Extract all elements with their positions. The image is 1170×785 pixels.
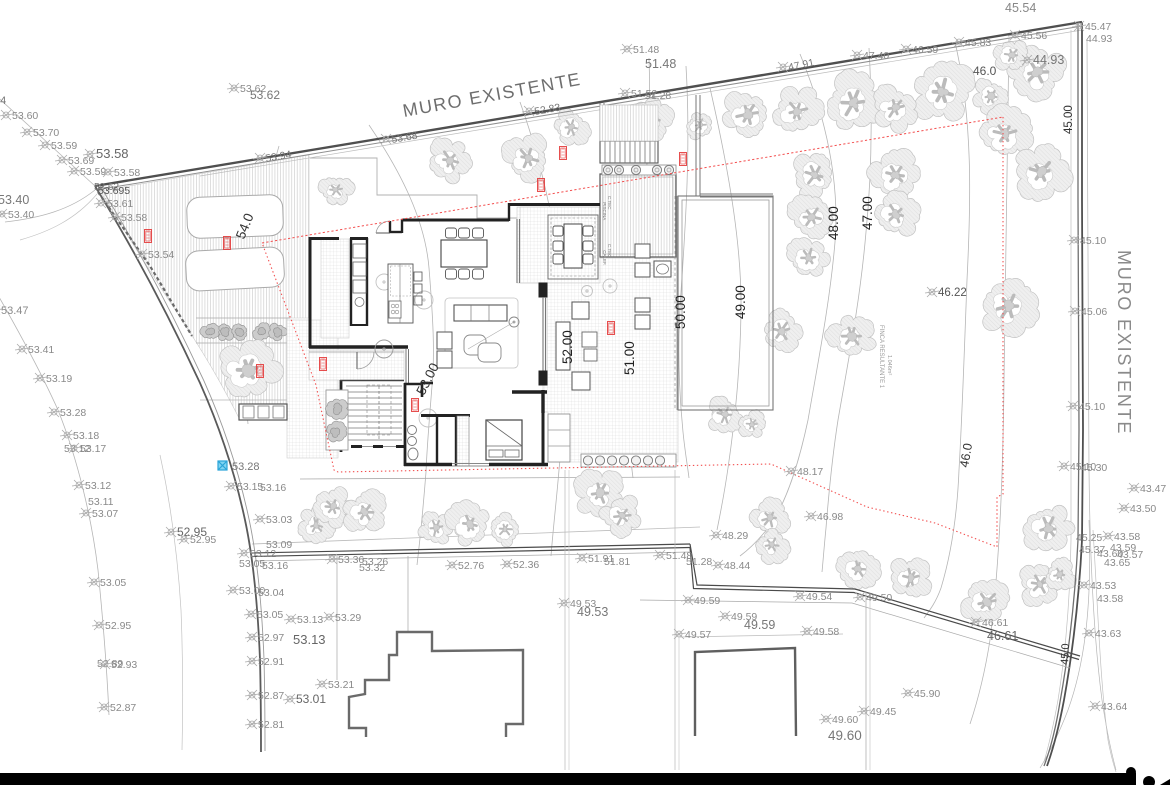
svg-text:53.54: 53.54 (148, 249, 174, 261)
svg-text:45.90: 45.90 (914, 688, 940, 700)
svg-text:45.47: 45.47 (1085, 21, 1111, 33)
svg-text:53.58: 53.58 (96, 146, 129, 161)
svg-text:52.81: 52.81 (258, 719, 284, 731)
svg-text:45.54: 45.54 (1005, 1, 1036, 15)
svg-text:43.47: 43.47 (1140, 483, 1166, 495)
svg-text:46.22: 46.22 (938, 287, 967, 299)
svg-text:53.05: 53.05 (100, 577, 126, 589)
svg-text:52.95: 52.95 (105, 620, 131, 632)
svg-text:49.57: 49.57 (685, 629, 711, 641)
svg-text:51.48: 51.48 (645, 57, 676, 71)
svg-text:52.00: 52.00 (560, 330, 575, 364)
svg-text:44.93: 44.93 (1033, 53, 1064, 67)
svg-text:53.18: 53.18 (73, 430, 99, 442)
svg-text:53.28: 53.28 (60, 407, 86, 419)
svg-text:52.36: 52.36 (513, 559, 539, 571)
svg-text:45.00: 45.00 (1063, 105, 1075, 134)
svg-text:46.61: 46.61 (987, 629, 1018, 643)
svg-text:51.28: 51.28 (645, 90, 671, 102)
svg-text:45.83: 45.83 (965, 37, 991, 49)
svg-text:48.29: 48.29 (722, 530, 748, 542)
svg-text:45.0: 45.0 (1059, 643, 1072, 665)
svg-text:53.70: 53.70 (33, 127, 59, 139)
svg-text:48.17: 48.17 (797, 466, 823, 478)
svg-text:43.65: 43.65 (1104, 557, 1130, 569)
svg-text:53.12: 53.12 (85, 480, 111, 492)
svg-text:53.58: 53.58 (121, 212, 147, 224)
svg-text:FINCA RESULTANTE 1: FINCA RESULTANTE 1 (878, 325, 884, 389)
svg-text:53.58: 53.58 (114, 167, 140, 179)
svg-text:53.60: 53.60 (12, 110, 38, 122)
svg-text:45.25: 45.25 (1076, 532, 1102, 544)
svg-text:53.13: 53.13 (293, 632, 326, 647)
svg-text:49.59: 49.59 (694, 595, 720, 607)
svg-text:46.59: 46.59 (912, 44, 938, 56)
svg-text:45.56: 45.56 (1021, 30, 1047, 42)
svg-text:46.98: 46.98 (817, 511, 843, 523)
svg-text:43.64: 43.64 (1101, 701, 1127, 713)
svg-text:51.28: 51.28 (686, 556, 712, 568)
svg-text:45.10: 45.10 (1080, 235, 1106, 247)
svg-text:49.60: 49.60 (828, 728, 862, 743)
svg-text:49.00: 49.00 (733, 285, 748, 319)
svg-text:49.50: 49.50 (866, 592, 892, 604)
svg-text:49.60: 49.60 (832, 714, 858, 726)
svg-text:53.04: 53.04 (258, 587, 284, 599)
svg-text:45.06: 45.06 (1081, 306, 1107, 318)
svg-text:53.21: 53.21 (328, 679, 354, 691)
svg-text:50.00: 50.00 (673, 295, 688, 329)
svg-text:44.93: 44.93 (1086, 33, 1112, 45)
svg-text:53.59: 53.59 (80, 166, 106, 178)
svg-text:51.81: 51.81 (604, 556, 630, 568)
svg-text:48.44: 48.44 (724, 560, 750, 572)
svg-text:46.61: 46.61 (982, 617, 1008, 629)
svg-text:53.61: 53.61 (107, 198, 133, 210)
svg-text:53.62: 53.62 (250, 88, 280, 102)
svg-text:53.07: 53.07 (92, 508, 118, 520)
svg-text:53.32: 53.32 (359, 562, 385, 574)
svg-text:43.63: 43.63 (1095, 628, 1121, 640)
svg-text:52.95: 52.95 (190, 534, 216, 546)
svg-text:52.97: 52.97 (258, 632, 284, 644)
svg-text:49.45: 49.45 (870, 706, 896, 718)
svg-text:53.17: 53.17 (80, 443, 106, 455)
svg-text:53.11: 53.11 (88, 496, 114, 508)
svg-text:49.58: 49.58 (813, 626, 839, 638)
svg-text:47.00: 47.00 (860, 196, 875, 230)
svg-text:52.87: 52.87 (258, 690, 284, 702)
svg-text:53.41: 53.41 (28, 344, 54, 356)
svg-text:49.54: 49.54 (806, 591, 832, 603)
svg-text:52.76: 52.76 (458, 560, 484, 572)
svg-text:52.91: 52.91 (258, 656, 284, 668)
svg-text:47.40: 47.40 (863, 50, 889, 62)
svg-text:51.00: 51.00 (622, 341, 637, 375)
svg-text:53.16: 53.16 (260, 482, 286, 494)
svg-text:53.13: 53.13 (297, 614, 323, 626)
svg-text:52.93: 52.93 (111, 659, 137, 671)
svg-text:43.53: 43.53 (1090, 580, 1116, 592)
svg-text:49.53: 49.53 (577, 605, 608, 619)
svg-text:MURO EXISTENTE: MURO EXISTENTE (1114, 250, 1134, 435)
svg-text:53.03: 53.03 (266, 514, 292, 526)
svg-text:49.59: 49.59 (744, 618, 775, 632)
svg-text:45.30: 45.30 (1081, 462, 1107, 474)
svg-text:53.59: 53.59 (51, 140, 77, 152)
svg-text:53.695: 53.695 (98, 185, 130, 197)
svg-text:53.28: 53.28 (232, 461, 260, 473)
svg-text:53.40: 53.40 (8, 209, 34, 221)
svg-text:53.01: 53.01 (296, 692, 326, 706)
svg-text:45.10: 45.10 (1079, 401, 1105, 413)
svg-text:1.046m²: 1.046m² (886, 355, 892, 375)
svg-text:74: 74 (0, 95, 6, 107)
svg-text:53.05: 53.05 (257, 609, 283, 621)
svg-text:53.16: 53.16 (262, 560, 288, 572)
svg-text:48.00: 48.00 (826, 206, 841, 240)
svg-text:53.47: 53.47 (1, 305, 29, 317)
svg-text:46.0: 46.0 (973, 64, 997, 78)
svg-text:53.19: 53.19 (46, 373, 72, 385)
svg-text:53.29: 53.29 (335, 612, 361, 624)
svg-text:43.58: 43.58 (1097, 593, 1123, 605)
svg-text:52.87: 52.87 (110, 702, 136, 714)
svg-text:43.50: 43.50 (1130, 503, 1156, 515)
svg-text:51.48: 51.48 (633, 44, 659, 56)
svg-text:53.40: 53.40 (0, 193, 29, 207)
